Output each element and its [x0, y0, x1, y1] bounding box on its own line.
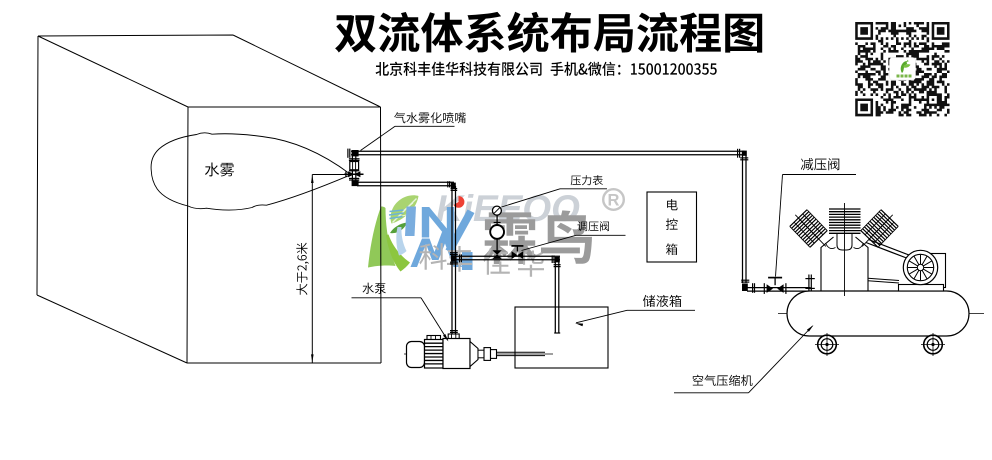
svg-text:R: R [608, 192, 620, 210]
